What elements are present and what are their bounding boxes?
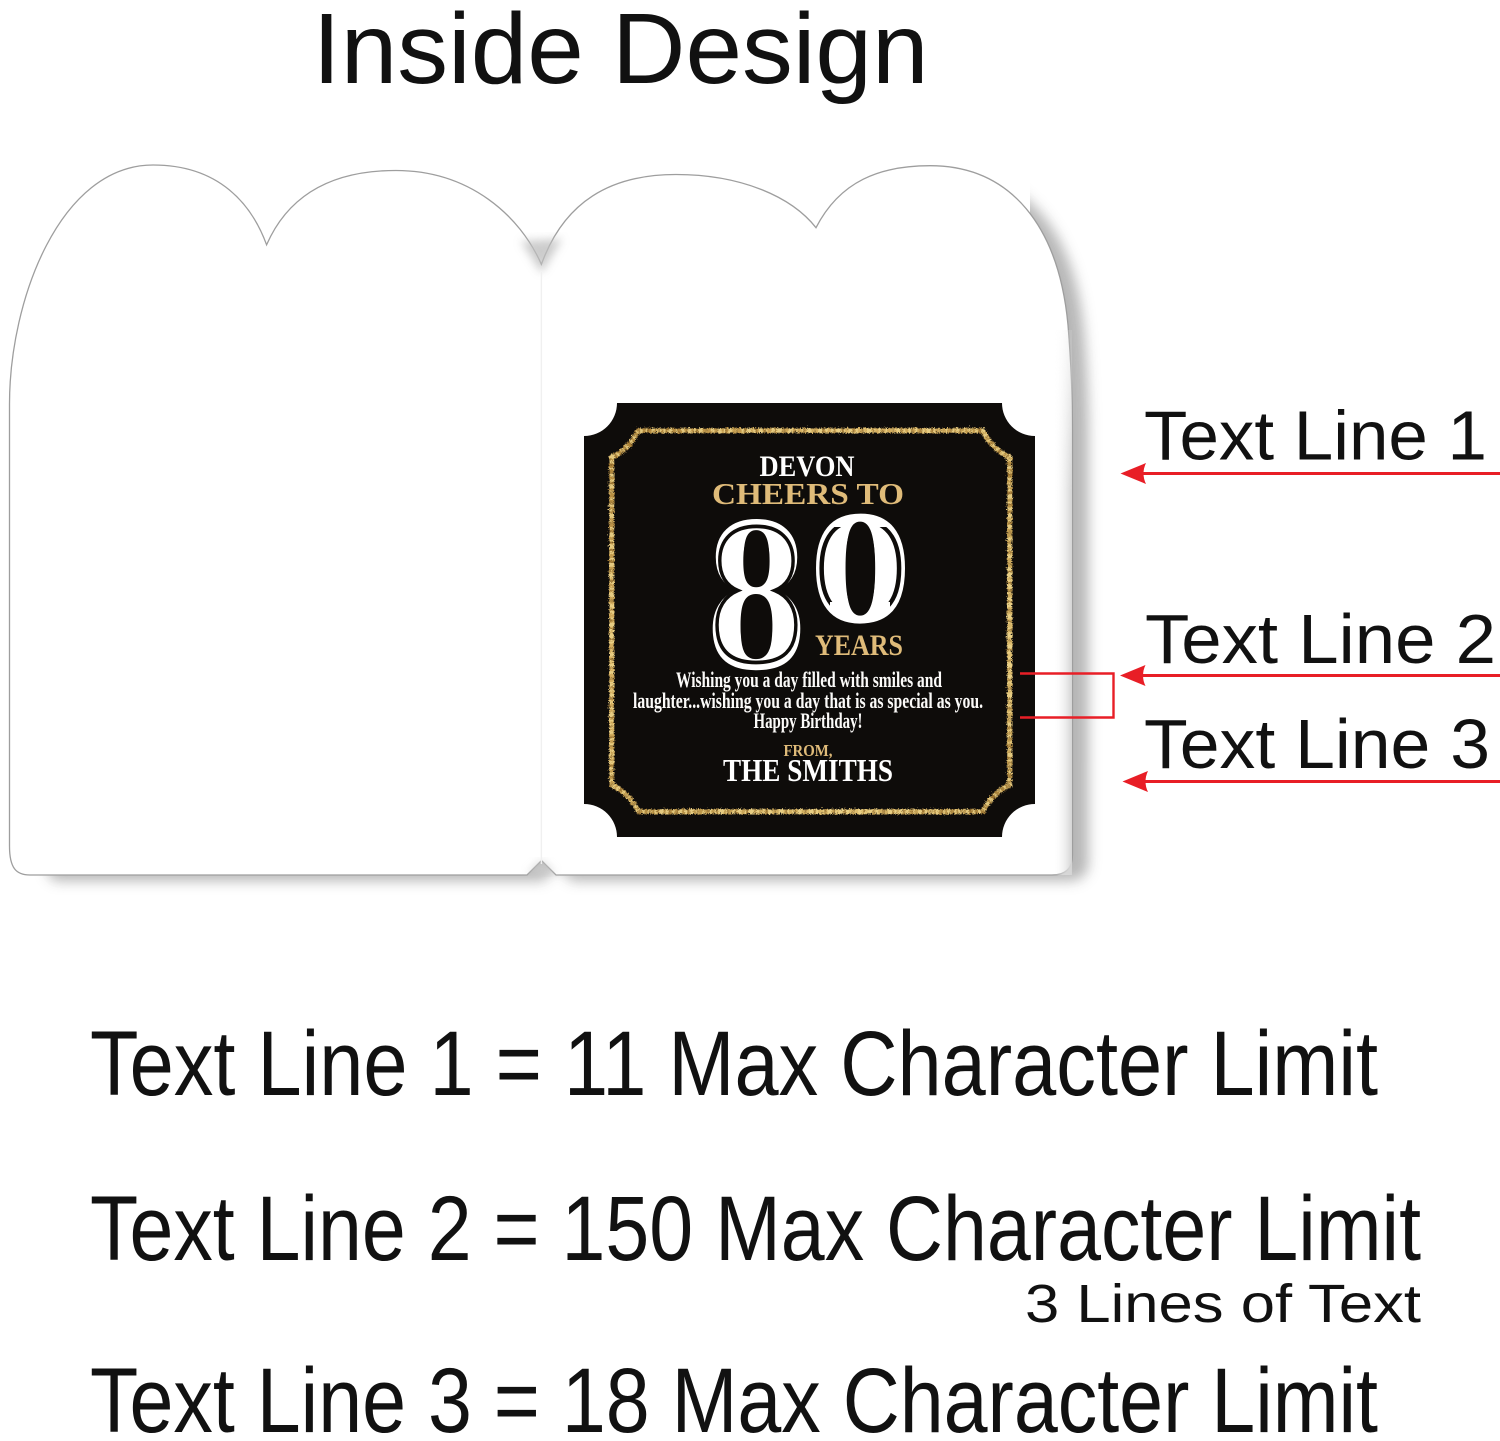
- svg-text:Text Line 1: Text Line 1: [1144, 397, 1487, 475]
- svg-text:Happy Birthday!: Happy Birthday!: [754, 708, 863, 733]
- svg-text:Text Line 3: Text Line 3: [1144, 705, 1490, 783]
- svg-text:Inside Design: Inside Design: [313, 0, 929, 105]
- svg-text:Text Line 3 = 18 Max Character: Text Line 3 = 18 Max Character Limit: [90, 1350, 1378, 1441]
- svg-text:Text Line 2 = 150 Max Characte: Text Line 2 = 150 Max Character Limit: [90, 1178, 1421, 1280]
- svg-text:YEARS: YEARS: [815, 629, 903, 662]
- svg-text:Text Line 2: Text Line 2: [1145, 600, 1496, 678]
- svg-text:3 Lines of Text: 3 Lines of Text: [1025, 1275, 1421, 1334]
- svg-text:Text Line 1 = 11 Max Character: Text Line 1 = 11 Max Character Limit: [90, 1013, 1378, 1115]
- svg-text:THE SMITHS: THE SMITHS: [723, 752, 893, 788]
